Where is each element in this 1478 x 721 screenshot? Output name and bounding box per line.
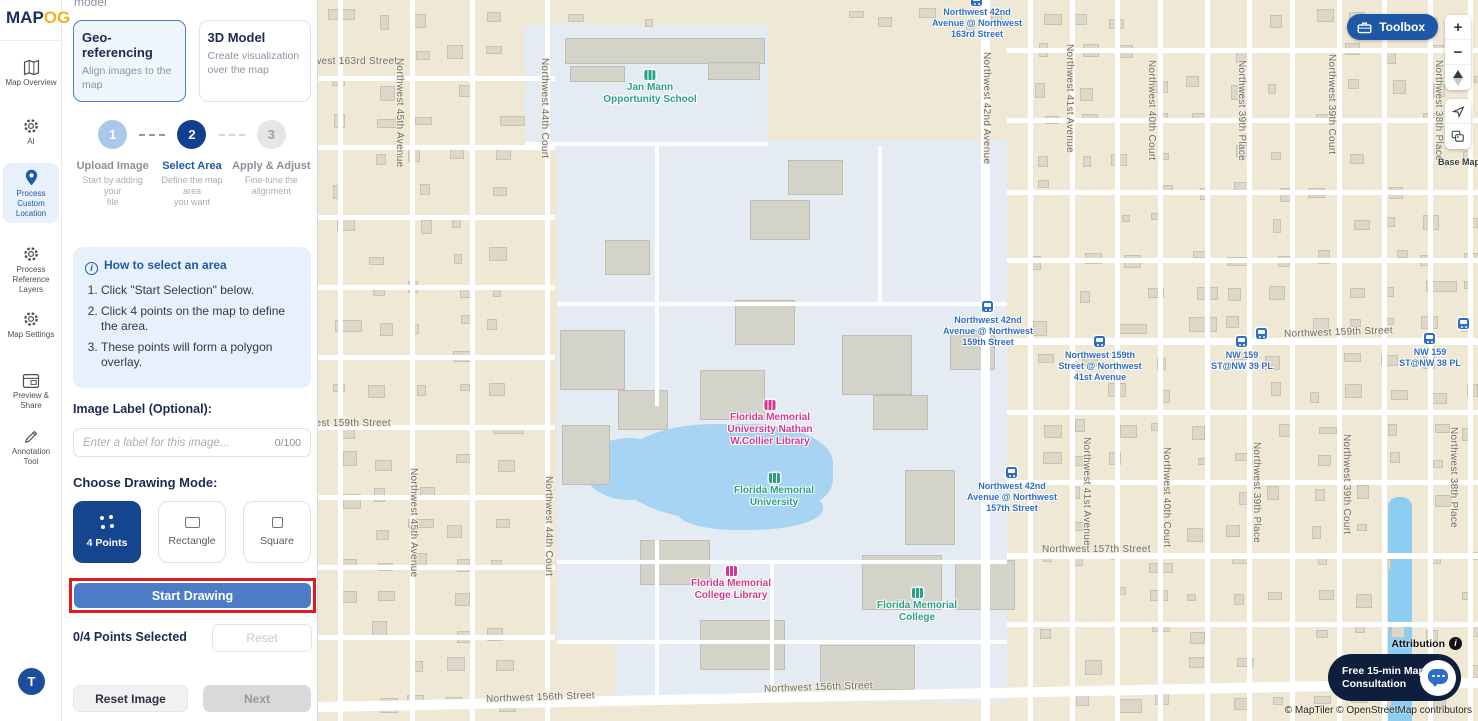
map-building	[1038, 354, 1054, 364]
map-building	[1314, 696, 1331, 703]
map-building	[1354, 220, 1370, 229]
workflow-panel: model › Geo-referencing Align images to …	[62, 0, 318, 721]
basemap-label: Base Map	[1438, 157, 1478, 167]
map-building	[369, 257, 384, 265]
map-building	[496, 519, 510, 528]
points-selected-status: 0/4 Points Selected	[73, 630, 187, 644]
map-credits[interactable]: © MapTiler © OpenStreetMap contributors	[1285, 705, 1472, 716]
map-street	[1337, 0, 1342, 721]
transit-stop-label: Northwest 42ndAvenue @ Northwest159th St…	[943, 315, 1033, 348]
map-building	[493, 289, 501, 298]
map-building	[414, 661, 424, 672]
map-building	[1186, 76, 1199, 86]
nav-controls	[1445, 99, 1471, 149]
bus-stop-icon	[1006, 467, 1017, 478]
info-icon: i	[1449, 637, 1462, 650]
map-building	[1189, 657, 1204, 668]
map-building	[1120, 425, 1137, 437]
map-building	[1187, 594, 1196, 601]
campus-building	[560, 330, 625, 390]
bus-stop-icon	[1458, 318, 1469, 329]
street-label: Northwest 38th Place	[1433, 60, 1444, 161]
campus-path	[655, 146, 659, 406]
bus-stop-icon	[1424, 333, 1435, 344]
map-street	[1290, 0, 1295, 721]
zoom-out-button[interactable]: −	[1445, 40, 1471, 65]
help-item: Click "Start Selection" below.	[101, 283, 299, 298]
map-building	[489, 383, 505, 397]
map-street	[1007, 410, 1478, 415]
map-building	[1035, 83, 1045, 97]
map-building	[1187, 528, 1203, 542]
map-building	[1189, 317, 1217, 331]
map-building	[486, 46, 502, 54]
map-building	[1350, 288, 1365, 299]
start-drawing-button[interactable]: Start Drawing	[74, 583, 311, 608]
help-item: These points will form a polygon overlay…	[101, 340, 299, 370]
map-building	[1193, 251, 1206, 258]
map-street	[318, 215, 555, 220]
map-building	[1273, 219, 1281, 233]
map-building	[1433, 460, 1443, 468]
map-street	[338, 0, 343, 721]
street-label: Northwest 42nd Avenue	[981, 52, 992, 164]
street-label: Northwest 157th Street	[1042, 544, 1151, 555]
library-icon	[765, 400, 776, 410]
map-street	[318, 635, 555, 640]
campus-building	[750, 200, 810, 240]
campus-path	[525, 142, 768, 146]
card-geo-referencing[interactable]: Geo-referencing Align images to the map	[73, 20, 186, 102]
consultation-line1: Free 15-min Map	[1342, 665, 1417, 678]
map-building	[1344, 353, 1360, 362]
map-building	[1033, 321, 1047, 336]
map-canvas[interactable]: Northwest 163rd StreetNorthwest 159th St…	[318, 0, 1478, 721]
four-points-icon	[100, 515, 115, 530]
locate-arrow-icon	[1452, 105, 1465, 118]
mapog-app: Northwest 163rd StreetNorthwest 159th St…	[0, 0, 1478, 721]
map-street	[1007, 258, 1478, 263]
map-building	[1268, 84, 1276, 93]
map-building	[1319, 427, 1337, 434]
mode-cards: Geo-referencing Align images to the map …	[73, 20, 311, 102]
map-building	[1080, 291, 1090, 303]
step-connector	[219, 134, 245, 136]
school-icon	[644, 70, 655, 80]
map-building	[368, 385, 384, 398]
street-label: Northwest 163rd Street	[318, 56, 397, 67]
basemap-layers-icon	[1451, 130, 1465, 143]
map-street	[1158, 0, 1163, 721]
campus-path	[557, 560, 1007, 564]
campus-path	[655, 540, 659, 700]
map-building	[376, 154, 386, 165]
map-building	[380, 15, 389, 30]
map-street	[1007, 622, 1478, 627]
street-label: Northwest 41st Avenue	[1064, 44, 1075, 153]
sidebar-item-map-overview[interactable]: Map Overview	[3, 54, 59, 92]
sidebar-item-annotation-tool[interactable]: Annotation Tool	[3, 423, 59, 471]
transit-stop-label: NW 159ST@NW 39 PL	[1211, 350, 1273, 372]
user-avatar[interactable]: T	[18, 668, 45, 695]
map-building	[498, 460, 515, 473]
map-building	[415, 117, 433, 125]
map-building	[1044, 425, 1062, 439]
next-button[interactable]: Next	[203, 685, 311, 712]
window-icon	[22, 373, 40, 389]
library-icon	[725, 566, 736, 576]
zoom-controls: + −	[1445, 15, 1471, 90]
map-building	[1315, 489, 1325, 502]
bus-stop-icon	[1094, 336, 1105, 347]
campus-building	[873, 395, 928, 430]
image-label-title: Image Label (Optional):	[73, 402, 212, 416]
drawing-mode-options: 4 Points Rectangle Square	[73, 501, 311, 563]
map-building	[380, 86, 395, 101]
image-label-input[interactable]	[83, 437, 275, 449]
map-building	[416, 51, 430, 60]
map-building	[1226, 525, 1239, 536]
map-building	[447, 525, 462, 539]
map-building	[447, 657, 465, 671]
transit-stop-label: Northwest 42ndAvenue @ Northwest163rd St…	[932, 7, 1022, 40]
sidebar-item-process-reference-layers[interactable]: Process Reference Layers	[3, 240, 59, 299]
divider	[0, 40, 62, 41]
pen-icon	[23, 428, 40, 445]
map-building	[1038, 156, 1048, 167]
map-building	[1270, 15, 1283, 28]
gear-icon	[22, 117, 40, 135]
street-label: Northwest 44th Court	[543, 476, 554, 577]
street-label: Northwest 45th Avenue	[394, 58, 405, 168]
pin-icon	[23, 168, 40, 187]
map-building	[1043, 452, 1062, 463]
mode-square[interactable]: Square	[243, 501, 311, 563]
clipped-heading: model	[74, 0, 107, 9]
map-icon	[22, 59, 41, 76]
map-building	[1075, 419, 1085, 432]
reset-points-button[interactable]: Reset	[212, 624, 312, 652]
map-building	[1356, 594, 1371, 608]
map-building	[568, 14, 584, 22]
campus-building	[562, 425, 610, 485]
campus-building	[735, 300, 795, 345]
map-building	[1431, 393, 1447, 404]
map-building	[1312, 526, 1320, 540]
compass-button[interactable]	[1445, 65, 1471, 90]
step-connector	[139, 134, 165, 136]
map-building	[372, 621, 387, 636]
map-building	[417, 385, 426, 396]
bus-stop-icon	[982, 301, 993, 312]
map-street	[318, 565, 555, 570]
map-building	[454, 254, 463, 264]
campus-path	[557, 302, 1007, 306]
card-3d-model[interactable]: 3D Model Create visualization over the m…	[199, 20, 312, 102]
school-icon	[768, 473, 779, 483]
map-building	[1228, 288, 1241, 301]
campus-building	[708, 62, 760, 80]
zoom-in-button[interactable]: +	[1445, 15, 1471, 40]
street-label: Northwest 41st Avenue	[1081, 437, 1092, 546]
street-label: Northwest 39th Court	[1326, 54, 1337, 155]
map-building	[1122, 215, 1131, 223]
map-building	[375, 460, 393, 471]
map-building	[378, 591, 395, 601]
map-street	[318, 355, 555, 360]
map-building	[376, 530, 389, 540]
map-building	[1268, 592, 1282, 600]
map-building	[849, 11, 864, 18]
street-label: Northwest 38th Place	[1448, 427, 1459, 528]
char-counter: 0/100	[275, 437, 301, 449]
map-building	[1397, 250, 1408, 258]
map-building	[1271, 152, 1281, 161]
map-building	[1317, 9, 1334, 21]
map-building	[1273, 697, 1284, 705]
info-icon: i	[85, 262, 98, 275]
street-label: Northwest 39th Court	[1341, 434, 1352, 535]
basemap-button[interactable]	[1445, 124, 1471, 149]
poi-label: Florida MemorialCollege Library	[691, 566, 771, 602]
map-building	[487, 319, 497, 330]
map-building	[1390, 452, 1399, 464]
attribution-label: Attribution	[1391, 638, 1445, 650]
map-building	[1118, 324, 1147, 334]
map-street	[318, 145, 555, 150]
map-street	[470, 0, 475, 721]
map-building	[1350, 154, 1364, 164]
campus-building	[905, 470, 955, 545]
toolbox-label: Toolbox	[1379, 20, 1425, 34]
square-icon	[272, 517, 283, 528]
drawing-mode-title: Choose Drawing Mode:	[73, 475, 217, 490]
map-building	[421, 220, 432, 234]
consultation-button[interactable]: Free 15-min Map Consultation	[1328, 654, 1461, 701]
transit-stop-label: Northwest 159thStreet @ Northwest41st Av…	[1058, 350, 1141, 383]
map-building	[455, 593, 470, 606]
map-building	[460, 384, 470, 391]
map-building	[1388, 424, 1397, 435]
sidebar-item-ai[interactable]: AI	[3, 112, 59, 151]
map-building	[878, 17, 891, 27]
map-building	[343, 451, 357, 465]
sidebar-item-process-custom-location[interactable]: Process Custom Location	[3, 163, 59, 223]
sidebar-item-preview-share[interactable]: Preview & Share	[3, 368, 59, 415]
poi-label: Florida MemorialUniversity	[734, 473, 814, 509]
street-label: Northwest 159th Street	[318, 418, 391, 429]
map-building	[1357, 485, 1370, 499]
map-building	[1226, 316, 1239, 328]
settings-gear-icon	[22, 310, 40, 328]
map-building	[1391, 390, 1408, 400]
school-icon	[911, 588, 922, 598]
briefcase-icon	[1357, 21, 1372, 34]
chat-bubble-icon	[1420, 660, 1456, 696]
map-building	[1393, 80, 1406, 94]
campus-building	[605, 240, 650, 275]
map-building	[489, 247, 506, 261]
bus-stop-icon	[1256, 328, 1267, 339]
map-street	[318, 285, 555, 290]
campus-building	[618, 390, 668, 430]
poi-label: Florida MemorialUniversity NathanW.Colli…	[727, 400, 812, 448]
geolocate-button[interactable]	[1445, 99, 1471, 124]
bus-stop-icon	[971, 0, 982, 6]
map-building	[1269, 286, 1285, 300]
map-building	[487, 12, 501, 22]
layers-gear-icon	[22, 245, 40, 263]
campus-building	[788, 160, 843, 195]
mapog-logo[interactable]: MAPOG	[6, 8, 60, 32]
map-building	[1085, 660, 1103, 674]
mode-4-points[interactable]: 4 Points	[73, 501, 141, 563]
consultation-line2: Consultation	[1342, 678, 1417, 691]
bus-stop-icon	[1236, 336, 1247, 347]
map-street	[1205, 0, 1210, 721]
map-building	[1474, 76, 1478, 83]
help-item: Click 4 points on the map to define the …	[101, 304, 299, 334]
map-building	[1192, 426, 1206, 440]
street-label: Northwest 39th Place	[1251, 442, 1262, 543]
transit-stop-label: NW 159ST@NW 38 PL	[1399, 347, 1461, 369]
map-building	[1118, 699, 1142, 714]
attribution-toggle[interactable]: Attribution i	[1391, 637, 1462, 650]
reset-image-button[interactable]: Reset Image	[73, 685, 188, 712]
map-street	[1007, 190, 1478, 195]
compass-icon	[1453, 70, 1463, 78]
map-building	[1080, 88, 1092, 101]
street-label: Northwest 45th Avenue	[408, 468, 419, 578]
sidebar-item-map-settings[interactable]: Map Settings	[3, 305, 59, 344]
toolbox-button[interactable]: Toolbox	[1347, 14, 1438, 40]
map-building	[1271, 382, 1281, 395]
map-building	[420, 184, 431, 195]
map-street	[1007, 48, 1478, 53]
map-street	[1382, 0, 1387, 721]
map-building	[1083, 156, 1091, 167]
street-label: Northwest 44th Court	[539, 58, 550, 159]
map-street	[318, 495, 555, 500]
map-building	[1190, 632, 1205, 644]
map-building	[1038, 180, 1049, 188]
map-building	[496, 660, 513, 671]
image-label-field: 0/100	[73, 428, 311, 457]
rectangle-icon	[185, 517, 200, 528]
street-label: Northwest 40th Court	[1146, 60, 1157, 161]
map-building	[447, 45, 463, 59]
poi-label: Jan MannOpportunity School	[603, 70, 696, 106]
map-street	[318, 76, 555, 81]
campus-path	[878, 146, 882, 302]
stepper: 1 Upload Image Start by adding yourfile …	[73, 120, 311, 210]
map-street	[410, 0, 415, 721]
campus-building	[565, 38, 765, 64]
map-building	[1267, 486, 1279, 499]
map-building	[1345, 384, 1362, 398]
map-building	[1319, 590, 1334, 599]
map-building	[1310, 392, 1319, 403]
map-building	[1357, 524, 1367, 531]
map-street	[1007, 480, 1478, 485]
map-building	[1040, 629, 1051, 639]
map-street	[1028, 0, 1033, 721]
campus-building	[842, 335, 912, 395]
street-label: Northwest 40th Court	[1161, 447, 1172, 548]
map-building	[645, 19, 654, 27]
street-label: Northwest 39th Place	[1236, 60, 1247, 161]
poi-label: Florida MemorialCollege	[877, 588, 957, 624]
help-box: iHow to select an area Click "Start Sele…	[73, 247, 311, 388]
transit-stop-label: Northwest 42ndAvenue @ Northwest157th St…	[967, 481, 1057, 514]
map-building	[1318, 455, 1332, 466]
map-building	[1234, 594, 1243, 605]
map-building	[1316, 630, 1328, 638]
map-building	[1348, 79, 1360, 89]
mode-rectangle[interactable]: Rectangle	[158, 501, 226, 563]
map-building	[500, 116, 525, 126]
icon-rail: MAPOG Map Overview AI Process Custom Loc…	[0, 0, 62, 721]
map-building	[1044, 14, 1061, 25]
campus-path	[557, 640, 1007, 644]
map-building	[380, 323, 393, 336]
map-building	[341, 591, 356, 602]
map-building	[493, 187, 507, 196]
